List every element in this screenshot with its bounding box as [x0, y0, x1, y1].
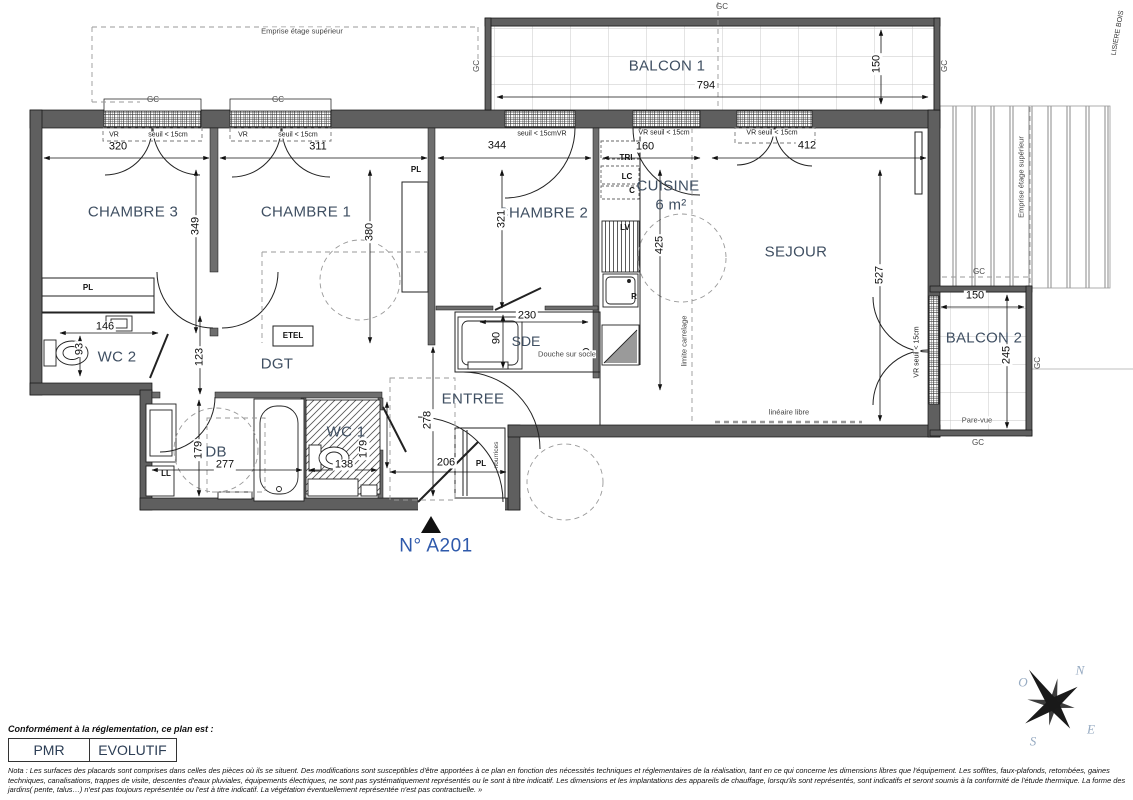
douche-sur-socle-label: Douche sur socle — [538, 350, 596, 358]
gc-label: GC — [272, 96, 284, 104]
floor-plan-linework — [0, 0, 1133, 800]
lv-label: LV — [620, 224, 630, 232]
dim-chambre1-height: 380 — [365, 221, 376, 243]
dim-balcon2-depth: 245 — [1002, 344, 1013, 366]
balconies — [491, 26, 1133, 430]
pl-label-wc2: PL — [83, 284, 93, 292]
lineaire-libre-label: linéaire libre — [769, 408, 809, 416]
gc-label: GC — [1034, 357, 1042, 369]
pl-label-entree: PL — [476, 460, 486, 468]
room-label-dgt: DGT — [261, 357, 294, 372]
legend-caption: Conformément à la réglementation, ce pla… — [8, 724, 214, 734]
dim-wc1-width: 138 — [333, 460, 355, 471]
room-label-sejour: SEJOUR — [765, 245, 828, 260]
evolutif-cell: EVOLUTIF — [89, 738, 177, 762]
front-door-opening — [418, 497, 505, 511]
gc-label: GC — [473, 60, 481, 72]
room-label-chambre-1: CHAMBRE 1 — [261, 205, 351, 220]
compass-south-label: S — [1030, 735, 1037, 748]
gc-label: GC — [972, 439, 984, 447]
dim-balcon2-width: 150 — [964, 291, 986, 302]
vr-seuil-label-vertical: VR seuil < 15cm — [914, 326, 921, 377]
dim-sejour-width: 412 — [796, 141, 818, 152]
seuil-label: seuil < 15cm — [148, 132, 188, 139]
dim-cuisine-height: 425 — [655, 234, 666, 256]
emprise-label-vertical: Emprise étage supérieur — [1017, 136, 1025, 218]
room-label-cuisine: CUISINE — [637, 179, 700, 194]
room-label-chambre-2: CHAMBRE 2 — [498, 206, 588, 221]
r-label: R — [631, 293, 637, 301]
dim-chambre3-height: 349 — [191, 215, 202, 237]
seuil-vr-label: seuil < 15cmVR — [517, 131, 566, 138]
dim-chambre2-width: 344 — [486, 141, 508, 152]
vr-label: VR — [238, 132, 248, 139]
room-label-wc2: WC 2 — [98, 350, 137, 365]
limite-carrelage-label: limite carrelage — [680, 316, 688, 367]
kitchen-appliances — [601, 141, 639, 365]
room-label-chambre-3: CHAMBRE 3 — [88, 205, 178, 220]
dim-sdb-width: 277 — [214, 460, 236, 471]
nourrices-label: nourrices — [494, 442, 501, 469]
dim-chambre1-width: 311 — [307, 142, 329, 153]
dim-balcon1-width: 794 — [695, 81, 717, 92]
etel-label: ETEL — [283, 332, 303, 340]
vr-seuil-label: VR seuil < 15cm — [746, 130, 797, 137]
dim-dgt-height: 123 — [195, 346, 206, 368]
dim-wc2-width: 146 — [94, 322, 116, 333]
pl-label-chambre1: PL — [411, 166, 421, 174]
dim-sejour-height: 527 — [875, 264, 886, 286]
vr-label: VR — [109, 132, 119, 139]
dim-chambre3-width: 320 — [107, 142, 129, 153]
tri-label: TRI — [620, 154, 633, 162]
regulation-table: PMR EVOLUTIF — [8, 738, 177, 762]
dim-entree-height: 278 — [423, 409, 434, 431]
dim-chambre2-height: 321 — [497, 208, 508, 230]
gc-label: GC — [147, 96, 159, 104]
compass-west-label: O — [1018, 676, 1027, 689]
dim-wc2-height: 93 — [75, 341, 86, 357]
dim-balcon1-depth: 150 — [872, 53, 883, 75]
nota-text: Nota : Les surfaces des placards sont co… — [8, 766, 1128, 795]
lc-label: LC — [622, 173, 633, 181]
vr-seuil-label: VR seuil < 15cm — [638, 130, 689, 137]
dim-cuisine-width: 160 — [634, 142, 656, 153]
seuil-label: seuil < 15cm — [278, 132, 318, 139]
compass-east-label: E — [1087, 723, 1095, 736]
c-label: C — [629, 187, 635, 195]
unit-number: N° A201 — [399, 537, 472, 556]
dim-sdb-height: 179 — [194, 439, 205, 461]
room-label-sde: SDE — [512, 334, 541, 348]
pare-vue-label: Pare-vue — [962, 416, 992, 424]
compass-north-label: N — [1076, 664, 1085, 677]
gc-label: GC — [716, 3, 728, 11]
dim-wc1-height: 179 — [359, 438, 370, 460]
room-label-entree: ENTREE — [442, 392, 505, 407]
gc-label: GC — [973, 268, 985, 276]
pmr-cell: PMR — [8, 738, 90, 762]
room-label-balcon-1: BALCON 1 — [629, 59, 706, 74]
dim-sde-height: 90 — [492, 330, 503, 346]
entry-marker-triangle — [421, 516, 441, 533]
floor-plan: GC GC GC GC GC GC GC GC Emprise étage su… — [0, 0, 1133, 800]
emprise-label: Emprise étage supérieur — [261, 27, 343, 35]
ll-label: LL — [161, 470, 171, 478]
cuisine-surface-label: 6 m² — [655, 198, 686, 213]
dim-sde-width: 230 — [516, 311, 538, 322]
gc-label: GC — [941, 60, 949, 72]
dim-entree-width: 206 — [435, 458, 457, 469]
